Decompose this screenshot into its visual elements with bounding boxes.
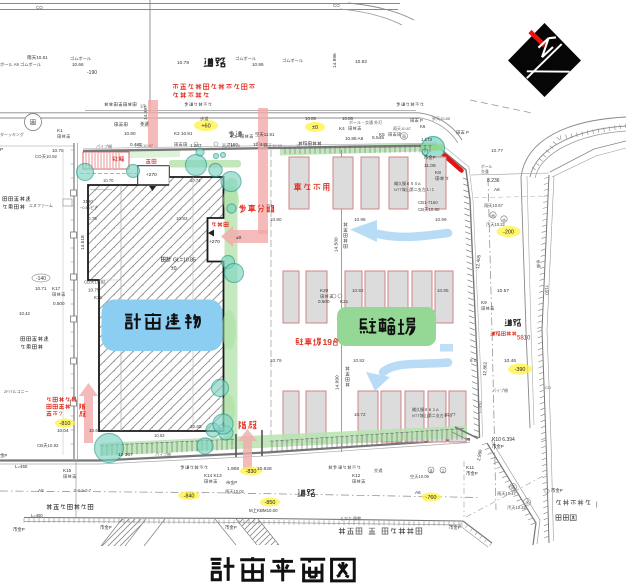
svg-text:A6: A6: [494, 187, 500, 192]
svg-text:-830: -830: [245, 469, 256, 475]
svg-text:雨天10.99: 雨天10.99: [222, 143, 241, 148]
svg-text:10.86: 10.86: [252, 62, 264, 67]
svg-text:市金P: 市金P: [226, 479, 237, 486]
svg-text:K1: K1: [57, 128, 63, 133]
svg-text:0.75: 0.75: [88, 216, 97, 221]
svg-text:汚天10.22: 汚天10.22: [507, 504, 527, 511]
svg-text:P: P: [0, 147, 3, 152]
svg-text:5810: 5810: [517, 336, 531, 342]
svg-text:10.99: 10.99: [435, 217, 447, 222]
svg-text:K6: K6: [420, 124, 426, 129]
svg-text:10.628: 10.628: [257, 466, 272, 472]
svg-text:金: 金: [429, 468, 433, 473]
svg-text:市金P: 市金P: [424, 154, 436, 161]
svg-text:K5: K5: [379, 132, 385, 137]
svg-text:10.57: 10.57: [497, 288, 509, 294]
svg-text:2Fバルコニー: 2Fバルコニー: [4, 389, 29, 394]
svg-text:汚天10.97: 汚天10.97: [135, 142, 154, 148]
svg-text:L=450: L=450: [31, 513, 43, 518]
svg-text:10.63: 10.63: [154, 433, 165, 438]
svg-text:1/2: 1/2: [140, 104, 146, 109]
svg-text:10.65: 10.65: [190, 424, 202, 429]
svg-text:14.500: 14.500: [334, 237, 340, 252]
svg-text:0.500: 0.500: [53, 301, 65, 306]
svg-text:14.518: 14.518: [80, 235, 86, 250]
svg-text:市金P: 市金P: [225, 524, 237, 531]
svg-text:L=450: L=450: [15, 464, 28, 469]
svg-text:CO: CO: [36, 5, 43, 10]
svg-text:1.908: 1.908: [227, 466, 239, 472]
svg-text:P: P: [466, 130, 469, 135]
svg-text:市金P: 市金P: [551, 487, 563, 494]
svg-text:-140: -140: [36, 276, 46, 282]
svg-text:M上KBM10.00: M上KBM10.00: [249, 507, 278, 513]
svg-text:L=450: L=450: [477, 400, 483, 413]
svg-text:±0: ±0: [171, 266, 177, 272]
svg-text:K21: K21: [340, 299, 349, 304]
svg-text:縄久慢６５０A: 縄久慢６５０A: [394, 180, 421, 186]
svg-text:ゴムボール: ゴムボール: [235, 55, 256, 61]
svg-text:K14 K13: K14 K13: [204, 473, 222, 478]
svg-text:10.42: 10.42: [19, 311, 31, 316]
svg-text:雨天10.99: 雨天10.99: [264, 143, 283, 148]
svg-text:汚天10.22: 汚天10.22: [486, 221, 506, 228]
svg-text:NTT城山第二支左１/１: NTT城山第二支左１/１: [394, 186, 435, 192]
svg-text:ターッキング: ターッキング: [0, 131, 24, 137]
svg-text:12 367: 12 367: [118, 452, 133, 458]
svg-text:K4: K4: [339, 126, 345, 131]
svg-text:10.72: 10.72: [354, 412, 366, 417]
svg-text:10.85: 10.85: [437, 288, 449, 293]
svg-text:0-0-9-0-7: 0-0-9-0-7: [74, 488, 92, 493]
svg-text:10.70: 10.70: [103, 178, 114, 183]
svg-text:±0: ±0: [312, 125, 318, 131]
svg-text:K12: K12: [352, 473, 361, 478]
svg-text:1.173: 1.173: [421, 137, 433, 142]
svg-text:10.98: 10.98: [354, 217, 366, 222]
svg-text:+60: +60: [201, 124, 210, 130]
svg-text:10.70: 10.70: [52, 148, 64, 153]
svg-text:10.63: 10.63: [89, 428, 101, 433]
svg-text:ゴムボール: ゴムボール: [282, 57, 303, 63]
svg-text:ボール A9 ゴムボール: ボール A9 ゴムボール: [0, 61, 41, 67]
svg-text:K8: K8: [435, 170, 441, 176]
svg-text:K15: K15: [63, 468, 72, 473]
svg-text:+270: +270: [209, 239, 220, 245]
svg-text:10.66: 10.66: [72, 62, 84, 67]
svg-text:10.77: 10.77: [444, 412, 456, 417]
svg-text:10.78: 10.78: [177, 60, 189, 66]
svg-text:パイプ柵: パイプ柵: [155, 451, 171, 457]
svg-text:ボール: ボール: [481, 164, 493, 169]
svg-text:とかり:勝教: とかり:勝教: [340, 515, 361, 521]
svg-text:3120: 3120: [83, 199, 93, 204]
svg-text:パイプ柵: パイプ柵: [492, 387, 508, 393]
svg-text:10.75: 10.75: [88, 288, 100, 293]
svg-text:ボール・交通 外灯: ボール・交通 外灯: [349, 119, 382, 125]
svg-text:パイプ柵: パイプ柵: [96, 143, 112, 149]
svg-text:10.92: 10.92: [352, 288, 364, 293]
svg-text:市金P: 市金P: [466, 470, 478, 477]
svg-text:市金P: 市金P: [492, 443, 504, 450]
svg-text:空天10.09: 空天10.09: [410, 473, 430, 480]
svg-text:11.09: 11.09: [424, 163, 436, 169]
svg-text:10.77: 10.77: [491, 148, 503, 154]
svg-text:10.88 A8: 10.88 A8: [345, 136, 364, 141]
svg-text:14.996: 14.996: [332, 53, 338, 68]
svg-text:歩天10.85: 歩天10.85: [432, 115, 451, 121]
svg-text:+270: +270: [146, 172, 157, 178]
svg-text:CO: CO: [333, 3, 340, 8]
svg-text:10.80: 10.80: [124, 131, 136, 136]
svg-text:±0: ±0: [236, 235, 242, 241]
svg-text:縄久慢８６１A: 縄久慢８６１A: [412, 406, 439, 412]
svg-text:11.: 11.: [296, 143, 301, 148]
svg-text:12.862: 12.862: [482, 361, 488, 376]
svg-text:CB1-7150: CB1-7150: [418, 200, 438, 205]
svg-text:市金P: 市金P: [100, 524, 112, 531]
svg-text:10.82: 10.82: [353, 358, 365, 363]
svg-text:0.500: 0.500: [318, 299, 330, 304]
svg-text:A5: A5: [38, 488, 44, 493]
svg-text:8 0: 8 0: [470, 358, 477, 363]
svg-text:ゴムボール: ゴムボール: [70, 55, 91, 61]
svg-text:~0.61ピチ: ~0.61ピチ: [80, 205, 98, 210]
svg-text:CO: CO: [545, 385, 551, 390]
svg-text:A6: A6: [415, 490, 421, 495]
svg-text:GL=10.85: GL=10.85: [173, 258, 196, 264]
svg-text:10.80: 10.80: [270, 217, 282, 222]
svg-text:7150: 7150: [544, 285, 550, 296]
svg-text:交通: 交通: [481, 169, 489, 174]
svg-text:交通: 交通: [374, 467, 383, 474]
svg-text:10.79: 10.79: [270, 358, 282, 363]
svg-text:8.236: 8.236: [487, 178, 500, 184]
svg-text:1.207: 1.207: [190, 143, 202, 148]
svg-text:14.990: 14.990: [335, 375, 341, 390]
svg-text:K16: K16: [94, 295, 102, 300]
svg-text:-200: -200: [503, 230, 514, 236]
svg-text:K17: K17: [52, 286, 61, 291]
svg-text:10.04: 10.04: [57, 428, 69, 433]
svg-text:市金P: 市金P: [449, 524, 461, 531]
svg-text:19: 19: [323, 337, 333, 347]
svg-text:主: 主: [441, 468, 445, 473]
svg-text:-760: -760: [425, 495, 436, 501]
svg-text:市金P: 市金P: [13, 526, 25, 533]
svg-text:雨: 雨: [402, 134, 406, 139]
svg-text:K20: K20: [320, 288, 329, 293]
svg-text:金P: 金P: [0, 452, 7, 458]
svg-text:-840: -840: [183, 494, 194, 500]
svg-text:-810: -810: [59, 421, 70, 427]
svg-text:雨: 雨: [491, 213, 495, 218]
svg-text:K3: K3: [231, 134, 237, 139]
svg-text:10.74: 10.74: [190, 178, 201, 183]
svg-text:10.85: 10.85: [305, 116, 317, 121]
svg-text:雨: 雨: [511, 485, 515, 490]
svg-text:-850: -850: [264, 500, 275, 506]
svg-text:歩道: 歩道: [200, 115, 209, 122]
svg-text:雨天10.87: 雨天10.87: [393, 126, 412, 131]
svg-text:K2 10.91: K2 10.91: [174, 131, 193, 136]
svg-text:K9: K9: [481, 300, 487, 305]
svg-text:P: P: [420, 118, 423, 123]
svg-text:10.71: 10.71: [35, 286, 47, 291]
svg-text:-190: -190: [87, 70, 97, 76]
svg-text:-390: -390: [514, 367, 525, 373]
svg-text:空天11.91: 空天11.91: [255, 131, 275, 138]
svg-text:エヌファーム: エヌファーム: [29, 203, 53, 208]
svg-text:10.46: 10.46: [504, 358, 516, 364]
svg-text:10.83: 10.83: [176, 216, 188, 221]
svg-text:K10 6.394: K10 6.394: [492, 437, 515, 443]
svg-text:10.92: 10.92: [355, 59, 367, 65]
